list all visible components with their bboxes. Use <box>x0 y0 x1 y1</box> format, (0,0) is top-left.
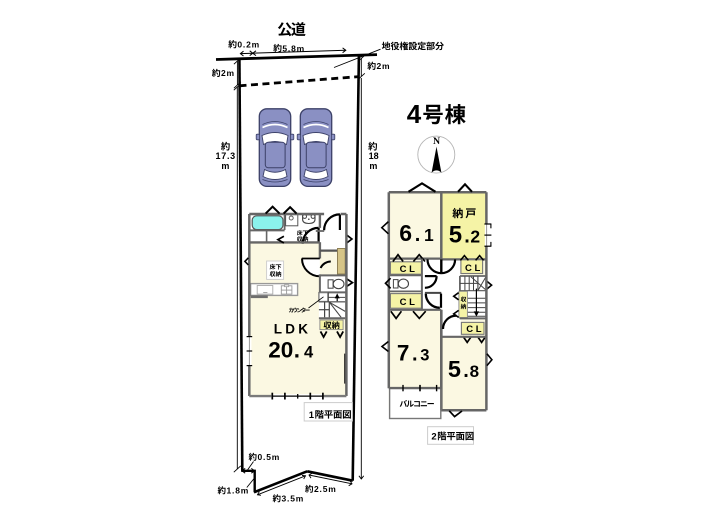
svg-text:0.5m: 0.5m <box>258 452 281 462</box>
svg-text:2m: 2m <box>377 61 391 71</box>
svg-text:5.8m: 5.8m <box>282 43 305 53</box>
svg-text:C: C <box>400 297 407 308</box>
svg-text:.: . <box>415 224 421 246</box>
svg-text:7: 7 <box>397 340 410 365</box>
svg-text:4: 4 <box>407 99 422 129</box>
svg-text:18: 18 <box>369 151 379 161</box>
svg-text:2: 2 <box>470 227 480 247</box>
svg-text:2.5m: 2.5m <box>314 484 337 494</box>
svg-text:L: L <box>409 297 415 308</box>
svg-text:.: . <box>412 343 418 365</box>
svg-text:C: C <box>465 263 472 274</box>
svg-text:2m: 2m <box>221 68 235 78</box>
svg-text:2: 2 <box>431 431 436 442</box>
svg-text:LDK: LDK <box>274 322 311 337</box>
svg-text:L: L <box>476 324 482 335</box>
svg-text:4: 4 <box>304 344 314 362</box>
svg-text:m: m <box>369 161 377 171</box>
svg-text:1: 1 <box>424 225 434 245</box>
svg-text:N: N <box>433 136 440 147</box>
svg-text:C: C <box>400 264 407 275</box>
svg-text:.: . <box>464 225 470 247</box>
svg-text:17.3: 17.3 <box>216 151 236 161</box>
svg-text:5: 5 <box>449 221 462 248</box>
svg-text:.: . <box>294 337 300 362</box>
svg-text:1.8m: 1.8m <box>227 486 250 496</box>
svg-text:0.2m: 0.2m <box>237 40 260 50</box>
svg-text:m: m <box>221 161 229 171</box>
svg-text:C: C <box>466 324 473 335</box>
svg-text:5: 5 <box>448 356 461 382</box>
svg-text:L: L <box>409 264 415 275</box>
svg-text:6: 6 <box>399 220 412 246</box>
svg-text:.: . <box>463 360 469 382</box>
svg-text:3: 3 <box>420 346 429 364</box>
svg-text:20: 20 <box>268 337 293 362</box>
svg-text:L: L <box>475 263 481 274</box>
svg-text:8: 8 <box>470 362 479 381</box>
svg-text:3.5m: 3.5m <box>282 494 305 504</box>
svg-text:1: 1 <box>309 410 315 421</box>
